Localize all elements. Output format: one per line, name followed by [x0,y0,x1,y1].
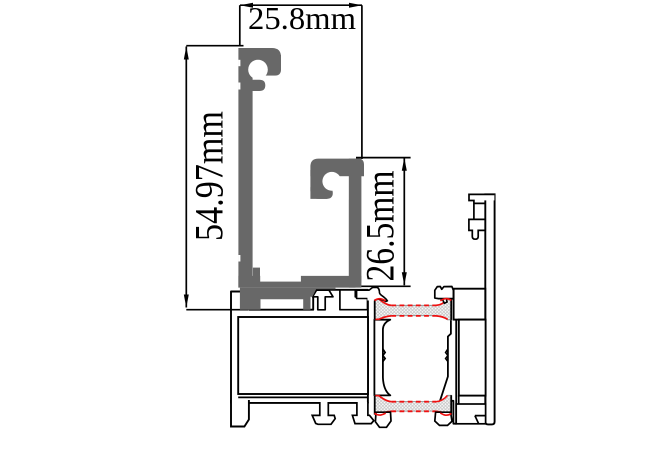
svg-text:25.8mm: 25.8mm [248,1,357,36]
svg-text:26.5mm: 26.5mm [358,171,403,282]
svg-text:54.97mm: 54.97mm [187,111,232,241]
